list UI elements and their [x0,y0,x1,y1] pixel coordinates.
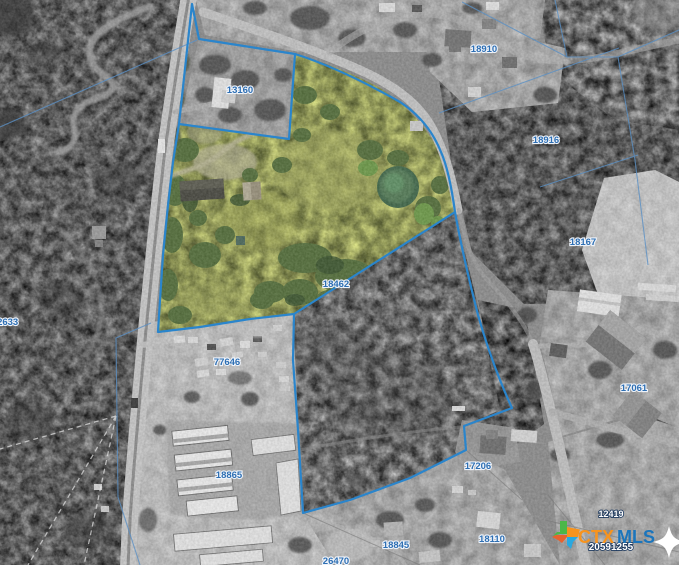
svg-text:18845: 18845 [383,540,410,551]
svg-text:18865: 18865 [216,470,243,481]
svg-text:12419: 12419 [598,509,623,519]
svg-text:18916: 18916 [533,135,559,146]
svg-text:26470: 26470 [323,556,349,565]
svg-text:18167: 18167 [570,237,596,248]
svg-text:17206: 17206 [465,461,491,472]
svg-text:77646: 77646 [214,357,240,368]
svg-text:13160: 13160 [227,85,253,96]
svg-text:CTX: CTX [578,527,614,547]
svg-text:MLS: MLS [617,527,655,547]
svg-text:18462: 18462 [323,279,349,290]
svg-text:17061: 17061 [621,383,648,394]
svg-text:18110: 18110 [479,534,505,545]
svg-text:12633: 12633 [0,317,18,328]
svg-text:18910: 18910 [471,44,497,55]
